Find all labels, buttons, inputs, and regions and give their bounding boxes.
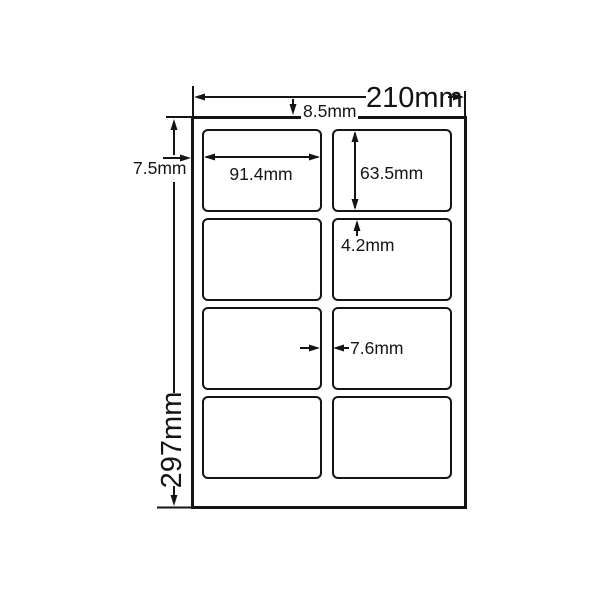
dim-label-width-arrowhead-left-icon [204,154,215,161]
dim-height-arrowhead-down-icon [171,495,178,506]
dim-col-gap-arrowhead-left-icon [333,345,344,352]
dim-row-gap-arrowhead-icon [354,220,361,231]
dimension-lines-layer [0,0,600,600]
top-margin-value: 8.5mm [301,101,358,121]
dim-label-height-arrowhead-down-icon [352,199,359,210]
label-sheet-diagram: 210mm 297mm 8.5mm 7.5mm 91.4mm 63.5mm 4.… [0,0,600,600]
dim-top-margin-arrowhead-icon [290,104,297,115]
label-width-value: 91.4mm [229,164,293,184]
dim-label-height-arrowhead-up-icon [352,131,359,142]
sheet-width-value: 210mm [366,83,463,113]
row-gap-value: 4.2mm [341,235,394,255]
dim-label-width-arrowhead-right-icon [309,154,320,161]
side-margin-value: 7.5mm [133,158,186,178]
dim-col-gap-arrowhead-right-icon [309,345,320,352]
column-gap-value: 7.6mm [350,338,403,358]
label-height-value: 63.5mm [360,163,423,183]
dim-width-arrowhead-left-icon [194,94,205,101]
sheet-height-value: 297mm [157,392,187,489]
dim-height-arrowhead-up-icon [171,119,178,130]
